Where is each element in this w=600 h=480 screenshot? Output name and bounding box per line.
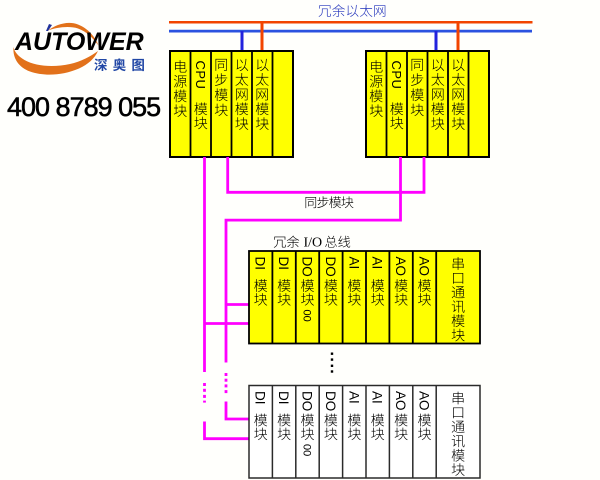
- svg-text:DO: DO: [323, 257, 338, 277]
- svg-text:00: 00: [301, 444, 313, 456]
- svg-text:DI: DI: [276, 391, 291, 405]
- svg-text:DI: DI: [253, 391, 268, 405]
- svg-text:I/O: I/O: [304, 236, 323, 251]
- svg-text:CPU: CPU: [389, 61, 404, 90]
- svg-text:AO: AO: [417, 391, 432, 411]
- svg-text:AI: AI: [370, 257, 385, 270]
- svg-text:DO: DO: [323, 391, 338, 411]
- svg-text:DI: DI: [276, 257, 291, 271]
- svg-text:AUTOWER: AUTOWER: [14, 28, 144, 56]
- svg-text:AI: AI: [346, 257, 361, 270]
- svg-text:AO: AO: [393, 257, 408, 277]
- svg-text:AO: AO: [393, 391, 408, 411]
- svg-text:00: 00: [301, 310, 313, 322]
- svg-text:AO: AO: [417, 257, 432, 277]
- svg-text:400 8789 055: 400 8789 055: [7, 92, 160, 122]
- svg-text:DO: DO: [300, 257, 315, 277]
- svg-text:AI: AI: [370, 391, 385, 404]
- svg-text:CPU: CPU: [193, 61, 208, 90]
- svg-text:AI: AI: [346, 391, 361, 404]
- svg-text:DI: DI: [253, 257, 268, 271]
- svg-text:DO: DO: [300, 391, 315, 411]
